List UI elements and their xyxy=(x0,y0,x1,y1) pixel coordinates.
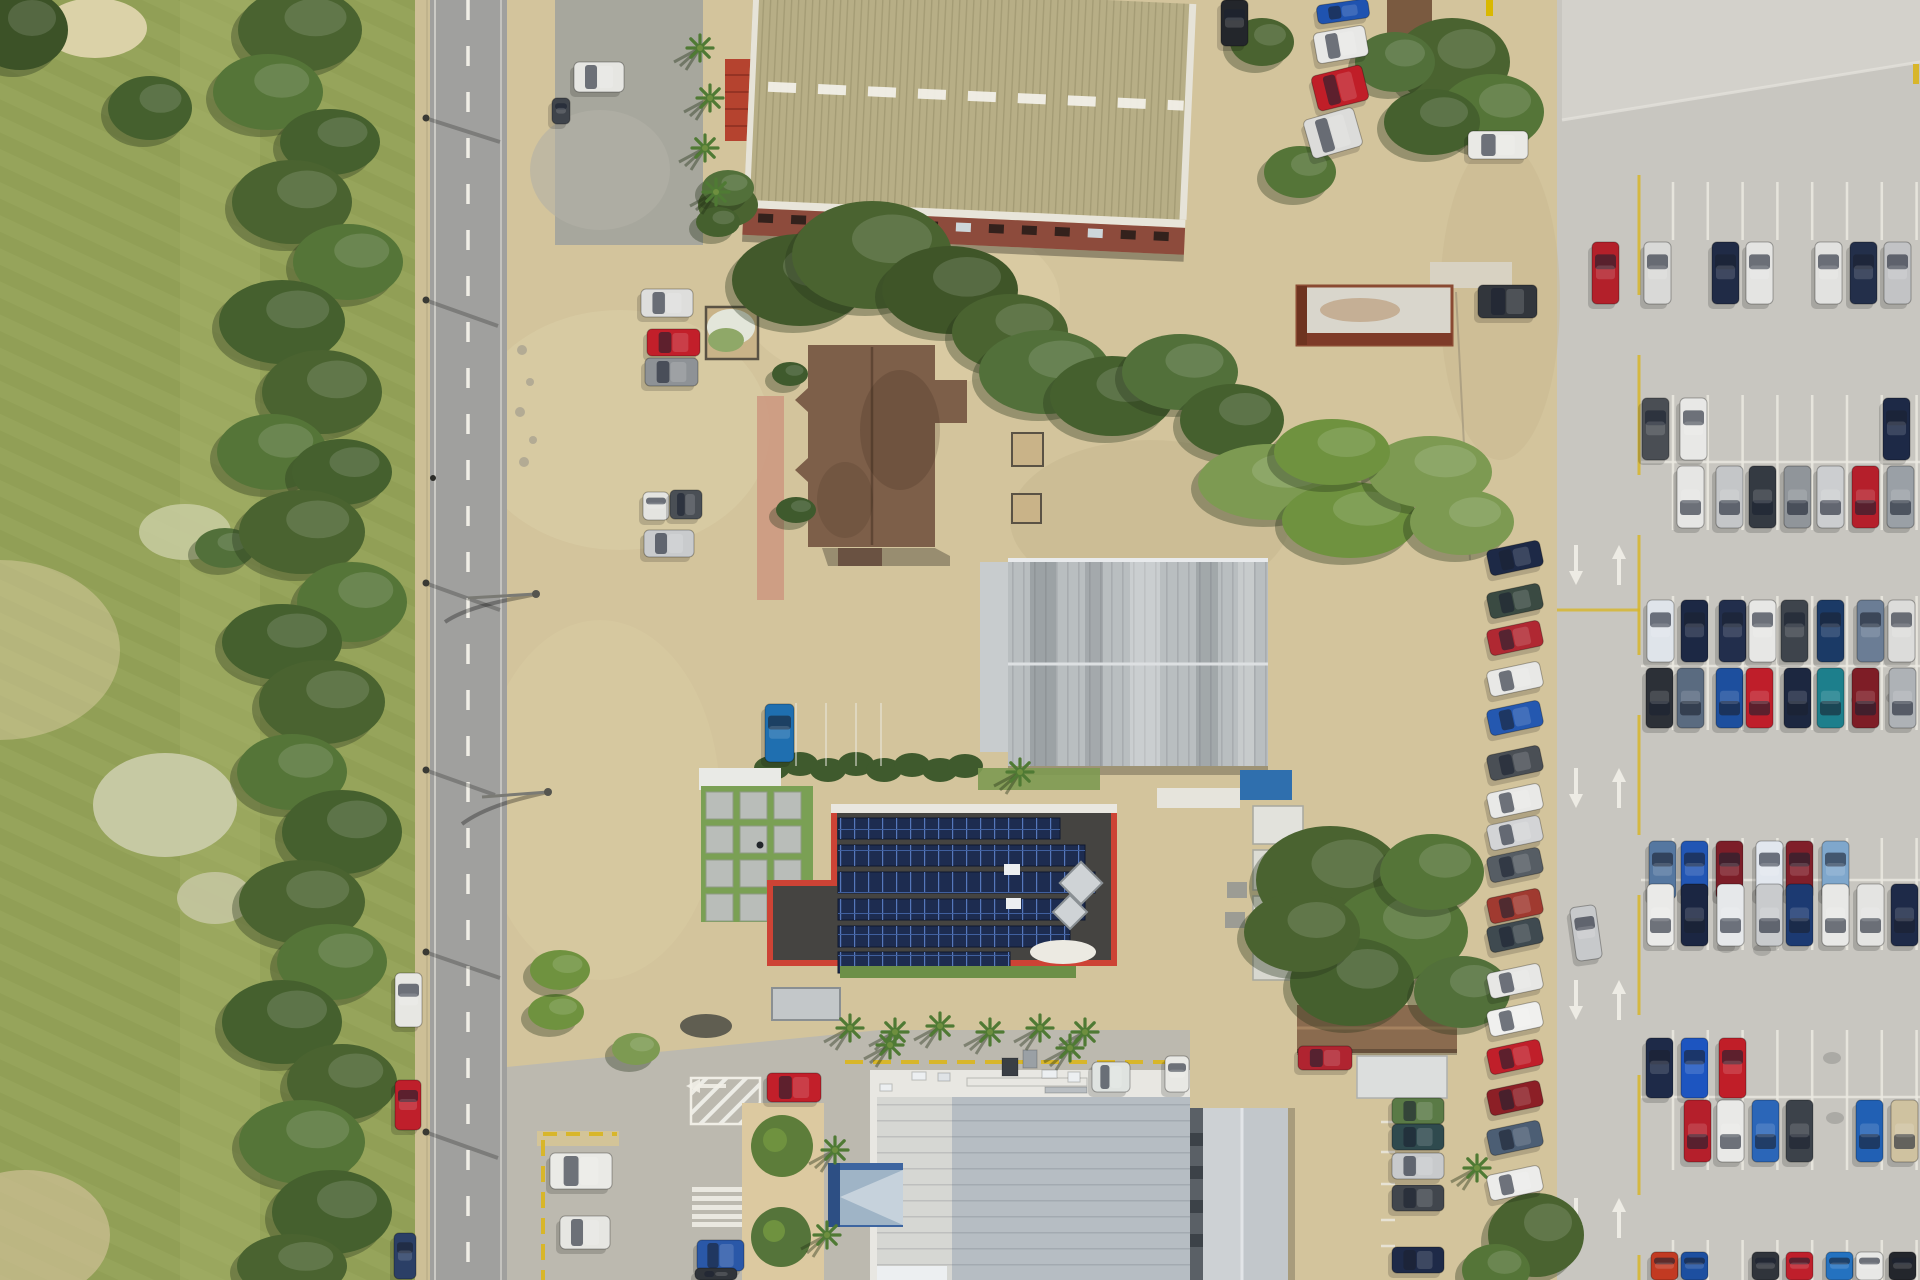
palm-crown xyxy=(847,1025,853,1031)
car-roof xyxy=(1788,490,1807,504)
car-roof xyxy=(1646,422,1665,436)
square-planter xyxy=(1012,494,1041,523)
tree-highlight xyxy=(1415,445,1477,477)
car-roof xyxy=(1225,17,1244,27)
car-roof xyxy=(1721,908,1740,922)
tree-highlight xyxy=(286,501,349,539)
parked-car xyxy=(1677,600,1708,667)
parked-car xyxy=(1388,1153,1444,1184)
solar-building-top-trim xyxy=(831,804,1117,813)
car-glass xyxy=(564,1156,579,1186)
car-roof xyxy=(1888,266,1907,280)
parked-car xyxy=(1161,1056,1189,1097)
tree-highlight xyxy=(266,291,329,329)
tree-highlight xyxy=(630,1037,654,1051)
palm-crown xyxy=(824,1232,830,1238)
hall-window xyxy=(989,224,1004,234)
car-roof xyxy=(1895,1124,1914,1138)
car-roof xyxy=(1895,908,1914,922)
parked-car xyxy=(391,1080,421,1135)
yellow-marker xyxy=(1913,64,1919,84)
car-glass xyxy=(677,493,685,516)
round-tree-highlight xyxy=(763,1128,787,1152)
lawn-strip xyxy=(978,768,1100,790)
parked-car xyxy=(1640,242,1671,309)
parked-car xyxy=(1464,131,1528,164)
car-roof xyxy=(668,534,683,553)
car-glass xyxy=(657,361,670,383)
car-roof xyxy=(647,503,665,509)
car-roof xyxy=(1648,266,1667,280)
tree-highlight xyxy=(317,1181,377,1219)
car-glass xyxy=(1100,1065,1109,1089)
tree-highlight xyxy=(328,1054,383,1088)
parked-car xyxy=(1677,1252,1708,1280)
tree-highlight xyxy=(549,999,577,1015)
warehouse-annex-roof xyxy=(980,562,1010,752)
paver-tile xyxy=(774,792,801,819)
parked-car xyxy=(1752,884,1783,951)
car-glass xyxy=(1328,5,1342,20)
tree-highlight xyxy=(267,991,327,1029)
car-roof xyxy=(1856,691,1875,704)
hedge-bush xyxy=(947,754,983,778)
paver-tile xyxy=(706,860,733,887)
car-roof xyxy=(1790,863,1809,876)
car-roof xyxy=(1497,135,1515,155)
hall-window xyxy=(758,213,773,223)
car-roof xyxy=(1685,1263,1704,1269)
parked-car xyxy=(1884,600,1915,667)
car-roof xyxy=(1860,1124,1879,1138)
tree-highlight xyxy=(307,361,367,399)
parked-car xyxy=(1885,1252,1916,1280)
parked-car xyxy=(639,492,669,525)
gable-shadow xyxy=(1288,1108,1295,1280)
tree-highlight xyxy=(327,801,387,839)
parked-car xyxy=(1088,1062,1130,1097)
parked-car xyxy=(1813,466,1844,533)
entrance-canopy xyxy=(828,1163,903,1227)
car-roof xyxy=(1341,4,1358,17)
parked-car xyxy=(1712,466,1743,533)
car-roof xyxy=(1681,490,1700,504)
car-roof xyxy=(1891,490,1910,504)
trailer xyxy=(1297,286,1452,345)
warehouse-top-trim xyxy=(1008,558,1268,562)
retail-roof-seams xyxy=(877,1097,1190,1280)
tree-highlight xyxy=(267,614,327,648)
paver-tile xyxy=(774,826,801,853)
parked-car xyxy=(1777,600,1808,667)
roof-vent xyxy=(1004,864,1020,875)
paver-tile xyxy=(740,860,767,887)
parked-car xyxy=(1708,242,1739,309)
car-roof xyxy=(1821,490,1840,504)
parked-car xyxy=(1680,1100,1711,1167)
parked-car xyxy=(666,490,702,524)
solar-panel-grid xyxy=(838,845,1085,866)
palm-crown xyxy=(713,189,719,195)
rooftop-unit xyxy=(1023,1050,1037,1068)
parked-car xyxy=(1638,398,1669,465)
parked-car xyxy=(1217,0,1248,51)
tree-highlight xyxy=(334,234,389,268)
palm-crown xyxy=(832,1147,838,1153)
car-roof xyxy=(1826,908,1845,922)
golf-rocky-patch xyxy=(93,753,237,857)
parked-car xyxy=(1780,466,1811,533)
paver-tile xyxy=(740,894,767,921)
parked-car xyxy=(390,1233,416,1280)
car-glass xyxy=(659,332,672,353)
parked-car xyxy=(1642,668,1673,733)
car-glass xyxy=(707,1243,718,1268)
car-roof xyxy=(1417,1102,1433,1120)
car-roof xyxy=(1324,1050,1340,1066)
tree-highlight xyxy=(791,500,811,512)
hall-window xyxy=(1121,230,1136,240)
rooftop-unit xyxy=(1002,1058,1018,1076)
car-roof xyxy=(1417,1189,1433,1207)
tree-highlight xyxy=(1385,40,1425,67)
parked-car xyxy=(1811,242,1842,309)
car-roof xyxy=(1819,266,1838,280)
parked-car xyxy=(1673,466,1704,533)
parked-car xyxy=(1848,668,1879,733)
parked-car xyxy=(1879,398,1910,465)
car-roof xyxy=(670,362,686,382)
tree-highlight xyxy=(8,0,56,36)
car-roof xyxy=(598,66,613,88)
paver-tile xyxy=(706,792,733,819)
round-tree-highlight xyxy=(763,1220,785,1242)
car-roof xyxy=(720,1244,734,1267)
car-roof xyxy=(1651,908,1670,922)
parked-car xyxy=(1715,600,1746,667)
tree-highlight xyxy=(1438,29,1496,69)
car-roof xyxy=(1596,266,1615,280)
roof-mottling xyxy=(860,370,940,490)
parked-car xyxy=(643,329,700,361)
car-roof xyxy=(1790,908,1809,922)
palm-crown xyxy=(707,95,713,101)
solar-panel-grid xyxy=(838,899,1085,920)
tree-highlight xyxy=(933,257,1001,297)
car-roof xyxy=(1723,624,1742,638)
car-roof xyxy=(1110,1066,1121,1088)
warehouse-building xyxy=(980,558,1268,775)
parked-car xyxy=(391,973,422,1032)
tree-highlight xyxy=(713,211,735,225)
parked-car xyxy=(1715,1038,1746,1103)
white-pad xyxy=(1157,788,1240,808)
parked-car xyxy=(1676,398,1707,465)
tree-highlight xyxy=(1219,393,1271,425)
car-roof xyxy=(1861,908,1880,922)
parked-car xyxy=(1848,466,1879,533)
solar-panel-grid xyxy=(838,818,1060,839)
aerial-photo-canvas: { "scene": { "kind": "aerial-top-down-ph… xyxy=(0,0,1920,1280)
motorcycles xyxy=(680,1014,732,1038)
car-roof xyxy=(1651,624,1670,638)
car-roof xyxy=(672,333,688,352)
parked-car xyxy=(1294,1046,1352,1075)
car-roof xyxy=(1417,1251,1433,1269)
parked-car xyxy=(691,1268,737,1280)
car-roof xyxy=(1720,490,1739,504)
car-roof xyxy=(1854,266,1873,280)
tree-highlight xyxy=(277,171,337,209)
car-glass xyxy=(1403,1127,1415,1147)
car-glass xyxy=(1403,1101,1415,1121)
square-planter xyxy=(1012,433,1043,466)
parked-car xyxy=(1748,1252,1779,1280)
paver-tile xyxy=(740,792,767,819)
car-glass xyxy=(704,1271,714,1277)
palm-crown xyxy=(887,1042,893,1048)
car-roof xyxy=(1688,1124,1707,1138)
tree-highlight xyxy=(1419,844,1471,878)
car-glass xyxy=(571,1219,583,1246)
hall-window xyxy=(1022,225,1037,235)
parked-car xyxy=(1782,1252,1813,1280)
parked-car xyxy=(1887,884,1918,951)
parked-car xyxy=(556,1216,610,1254)
gable-building xyxy=(1190,1108,1295,1280)
paver-tile xyxy=(740,826,767,853)
rooftop-unit xyxy=(880,1084,892,1091)
parked-car xyxy=(1588,242,1619,309)
hall-window xyxy=(1088,228,1103,238)
palm-crown xyxy=(1474,1165,1480,1171)
parked-car xyxy=(1647,1252,1678,1280)
car-glass xyxy=(1310,1049,1323,1067)
paver-tile xyxy=(706,894,733,921)
storage-container xyxy=(772,988,840,1020)
car-roof xyxy=(666,293,682,313)
car-roof xyxy=(1826,863,1845,876)
aerial-scene xyxy=(0,0,1920,1280)
tree-highlight xyxy=(278,744,333,778)
palm-crown xyxy=(892,1029,898,1035)
palm-crown xyxy=(937,1023,943,1029)
parked-car xyxy=(1643,600,1674,667)
car-roof xyxy=(1716,266,1735,280)
parked-car xyxy=(1742,668,1773,733)
tree-highlight xyxy=(318,934,373,968)
parked-car xyxy=(637,289,693,322)
parked-car xyxy=(1713,1100,1744,1167)
event-hall-corrugation xyxy=(744,0,1195,220)
tree-highlight xyxy=(1479,84,1531,118)
rooftop-unit xyxy=(1042,1070,1057,1078)
car-roof xyxy=(1576,925,1595,939)
car-roof xyxy=(1860,1263,1879,1269)
brick-path xyxy=(757,396,784,600)
parked-car xyxy=(1853,600,1884,667)
tree-highlight xyxy=(1449,497,1501,527)
car-roof xyxy=(1750,691,1769,704)
car-roof xyxy=(1650,691,1669,704)
parked-car xyxy=(546,1153,612,1194)
tree-highlight xyxy=(306,671,369,709)
parked-car xyxy=(1813,600,1844,667)
car-roof xyxy=(1685,1061,1704,1074)
car-roof xyxy=(399,1099,417,1110)
rooftop-unit xyxy=(1045,1087,1087,1093)
street-light-pole xyxy=(532,590,540,598)
parked-car xyxy=(1673,668,1704,733)
car-roof xyxy=(793,1077,809,1098)
white-carport xyxy=(1357,1056,1447,1098)
parked-car xyxy=(1748,1100,1779,1167)
parked-car xyxy=(1742,242,1773,309)
parked-car xyxy=(1474,285,1537,323)
car-roof xyxy=(1753,624,1772,638)
car-glass xyxy=(655,533,667,554)
tree-highlight xyxy=(1254,24,1286,46)
car-roof xyxy=(685,494,695,515)
parked-car xyxy=(1853,884,1884,951)
palm-crown xyxy=(1017,769,1023,775)
parked-car xyxy=(1677,1038,1708,1103)
roof-white-patch xyxy=(1030,940,1096,964)
car-roof xyxy=(1655,1263,1674,1269)
paver-tile xyxy=(706,826,733,853)
oil-stain xyxy=(1826,1112,1844,1124)
car-roof xyxy=(399,994,418,1006)
tree-highlight xyxy=(1420,97,1468,127)
car-roof xyxy=(1756,1263,1775,1269)
retail-south-canopy xyxy=(877,1266,947,1280)
car-glass xyxy=(1403,1156,1415,1176)
parked-car xyxy=(761,704,794,767)
parked-car xyxy=(1883,466,1914,533)
tree-highlight xyxy=(140,84,182,113)
car-roof xyxy=(1685,863,1704,876)
car-roof xyxy=(1417,1128,1433,1146)
flower-planter-greens xyxy=(708,328,744,352)
car-roof xyxy=(1685,908,1704,922)
rooftop-unit xyxy=(938,1073,950,1081)
car-roof xyxy=(1788,691,1807,704)
car-roof xyxy=(1721,1124,1740,1138)
hall-window xyxy=(956,222,971,232)
parked-car xyxy=(1822,1252,1853,1280)
car-roof xyxy=(1653,863,1672,876)
car-roof xyxy=(1821,691,1840,704)
parked-car xyxy=(1782,884,1813,951)
parked-car xyxy=(1880,242,1911,309)
car-glass xyxy=(652,292,664,314)
car-roof xyxy=(1790,1263,1809,1269)
car-glass xyxy=(1403,1250,1415,1270)
parked-car xyxy=(1852,1252,1883,1280)
parked-car xyxy=(1642,1038,1673,1103)
car-roof xyxy=(1893,1263,1912,1269)
parked-car xyxy=(763,1073,821,1107)
parked-car xyxy=(1388,1247,1444,1278)
tree-highlight xyxy=(1488,1251,1522,1274)
parked-car xyxy=(1852,1100,1883,1167)
car-roof xyxy=(1750,266,1769,280)
tree-highlight xyxy=(286,871,349,909)
car-roof xyxy=(1723,1061,1742,1074)
car-glass xyxy=(1481,134,1495,156)
parked-car xyxy=(1885,668,1916,733)
parked-car xyxy=(1818,884,1849,951)
tree-highlight xyxy=(330,447,380,477)
palm-crown xyxy=(1037,1025,1043,1031)
tree-highlight xyxy=(338,572,393,608)
car-roof xyxy=(1506,289,1524,314)
car-roof xyxy=(1892,624,1911,638)
solar-panel-grid xyxy=(838,872,1095,893)
parked-car xyxy=(1780,668,1811,733)
parked-car xyxy=(1745,600,1776,667)
parked-car xyxy=(570,62,624,97)
palm-crown xyxy=(987,1029,993,1035)
hall-window xyxy=(1154,231,1169,241)
car-roof xyxy=(1685,624,1704,638)
car-roof xyxy=(1753,490,1772,504)
car-roof xyxy=(1650,1061,1669,1074)
parked-car xyxy=(1388,1185,1444,1216)
tree-highlight xyxy=(285,0,347,36)
parked-car xyxy=(1643,884,1674,951)
car-roof xyxy=(1821,624,1840,638)
parked-car xyxy=(640,530,694,562)
retail-building xyxy=(828,1050,1190,1280)
parked-car xyxy=(641,358,698,391)
car-roof xyxy=(1830,1263,1849,1269)
tree-highlight xyxy=(286,1111,349,1149)
tree-highlight xyxy=(1288,902,1346,938)
parked-car xyxy=(1388,1124,1444,1155)
car-roof xyxy=(1169,1070,1185,1078)
blue-container xyxy=(1240,770,1292,800)
car-glass xyxy=(1403,1188,1415,1208)
rooftop-unit xyxy=(1068,1072,1080,1082)
tree-highlight xyxy=(786,365,804,376)
car-roof xyxy=(556,108,566,114)
car-roof xyxy=(1893,691,1912,704)
tree-highlight xyxy=(1318,427,1376,457)
palm-crown xyxy=(1082,1029,1088,1035)
car-roof xyxy=(1681,691,1700,704)
hall-window xyxy=(1055,227,1070,237)
parked-car xyxy=(1677,884,1708,951)
car-roof xyxy=(1760,908,1779,922)
car-roof xyxy=(580,1157,599,1185)
parked-car xyxy=(1887,1100,1918,1167)
sidewalk xyxy=(1430,262,1512,288)
pedestrian xyxy=(430,475,436,481)
parked-car xyxy=(1745,466,1776,533)
car-roof xyxy=(1785,624,1804,638)
person-on-patio xyxy=(757,842,764,849)
car-roof xyxy=(1790,1124,1809,1138)
street-light-pole xyxy=(544,788,552,796)
tree-highlight xyxy=(1166,344,1224,378)
car-roof xyxy=(1887,422,1906,436)
car-glass xyxy=(1491,288,1505,315)
car-roof xyxy=(1684,422,1703,436)
solar-panel-grid xyxy=(838,926,1070,947)
rooftop-unit xyxy=(912,1072,926,1080)
car-roof xyxy=(715,1272,728,1276)
